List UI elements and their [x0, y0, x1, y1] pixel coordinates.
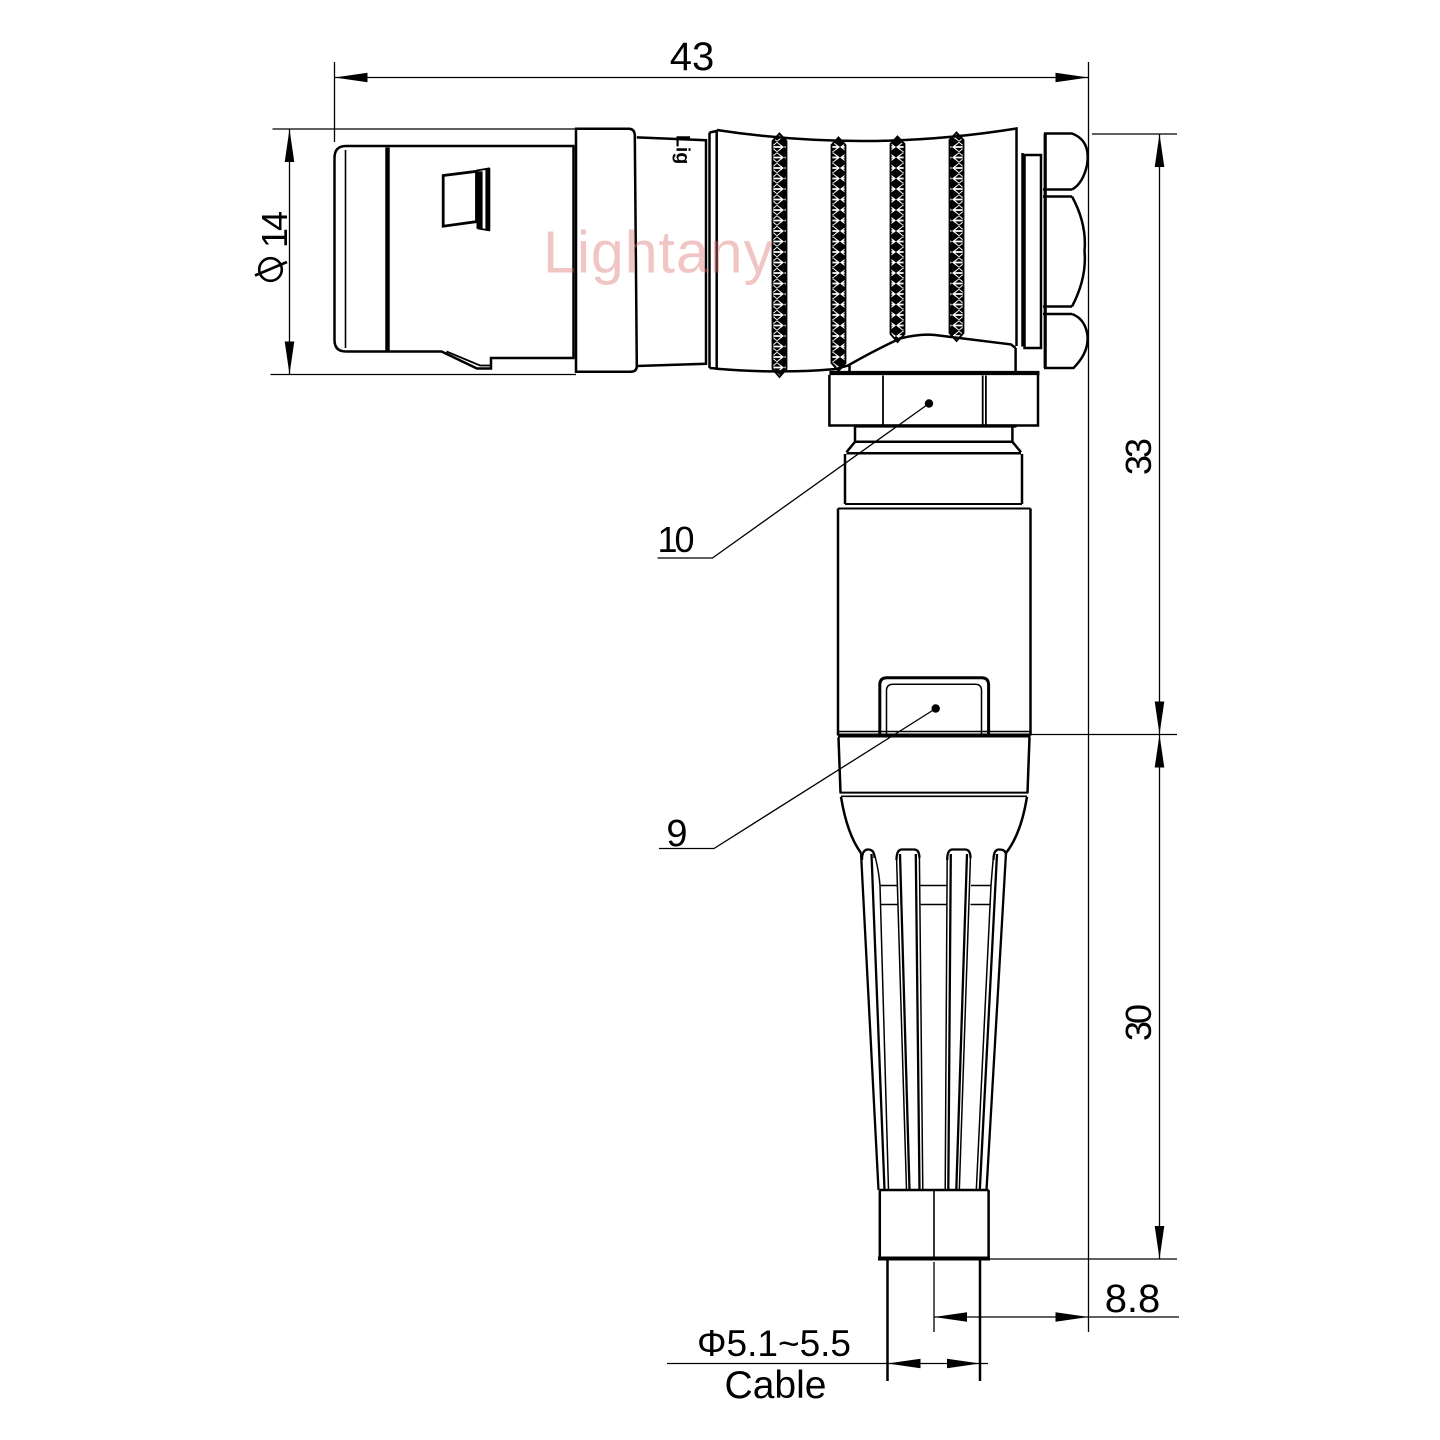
- svg-text:Lightany: Lightany: [543, 220, 774, 286]
- svg-text:8.8: 8.8: [1105, 1277, 1161, 1321]
- svg-text:43: 43: [670, 35, 715, 79]
- svg-text:10: 10: [657, 519, 693, 560]
- svg-text:Lig: Lig: [672, 135, 694, 164]
- svg-text:33: 33: [1118, 439, 1159, 475]
- svg-text:14: 14: [254, 212, 295, 248]
- svg-text:30: 30: [1118, 1005, 1159, 1041]
- svg-text:Cable: Cable: [725, 1364, 827, 1407]
- svg-text:9: 9: [666, 813, 687, 855]
- svg-text:Φ5.1~5.5: Φ5.1~5.5: [697, 1323, 851, 1364]
